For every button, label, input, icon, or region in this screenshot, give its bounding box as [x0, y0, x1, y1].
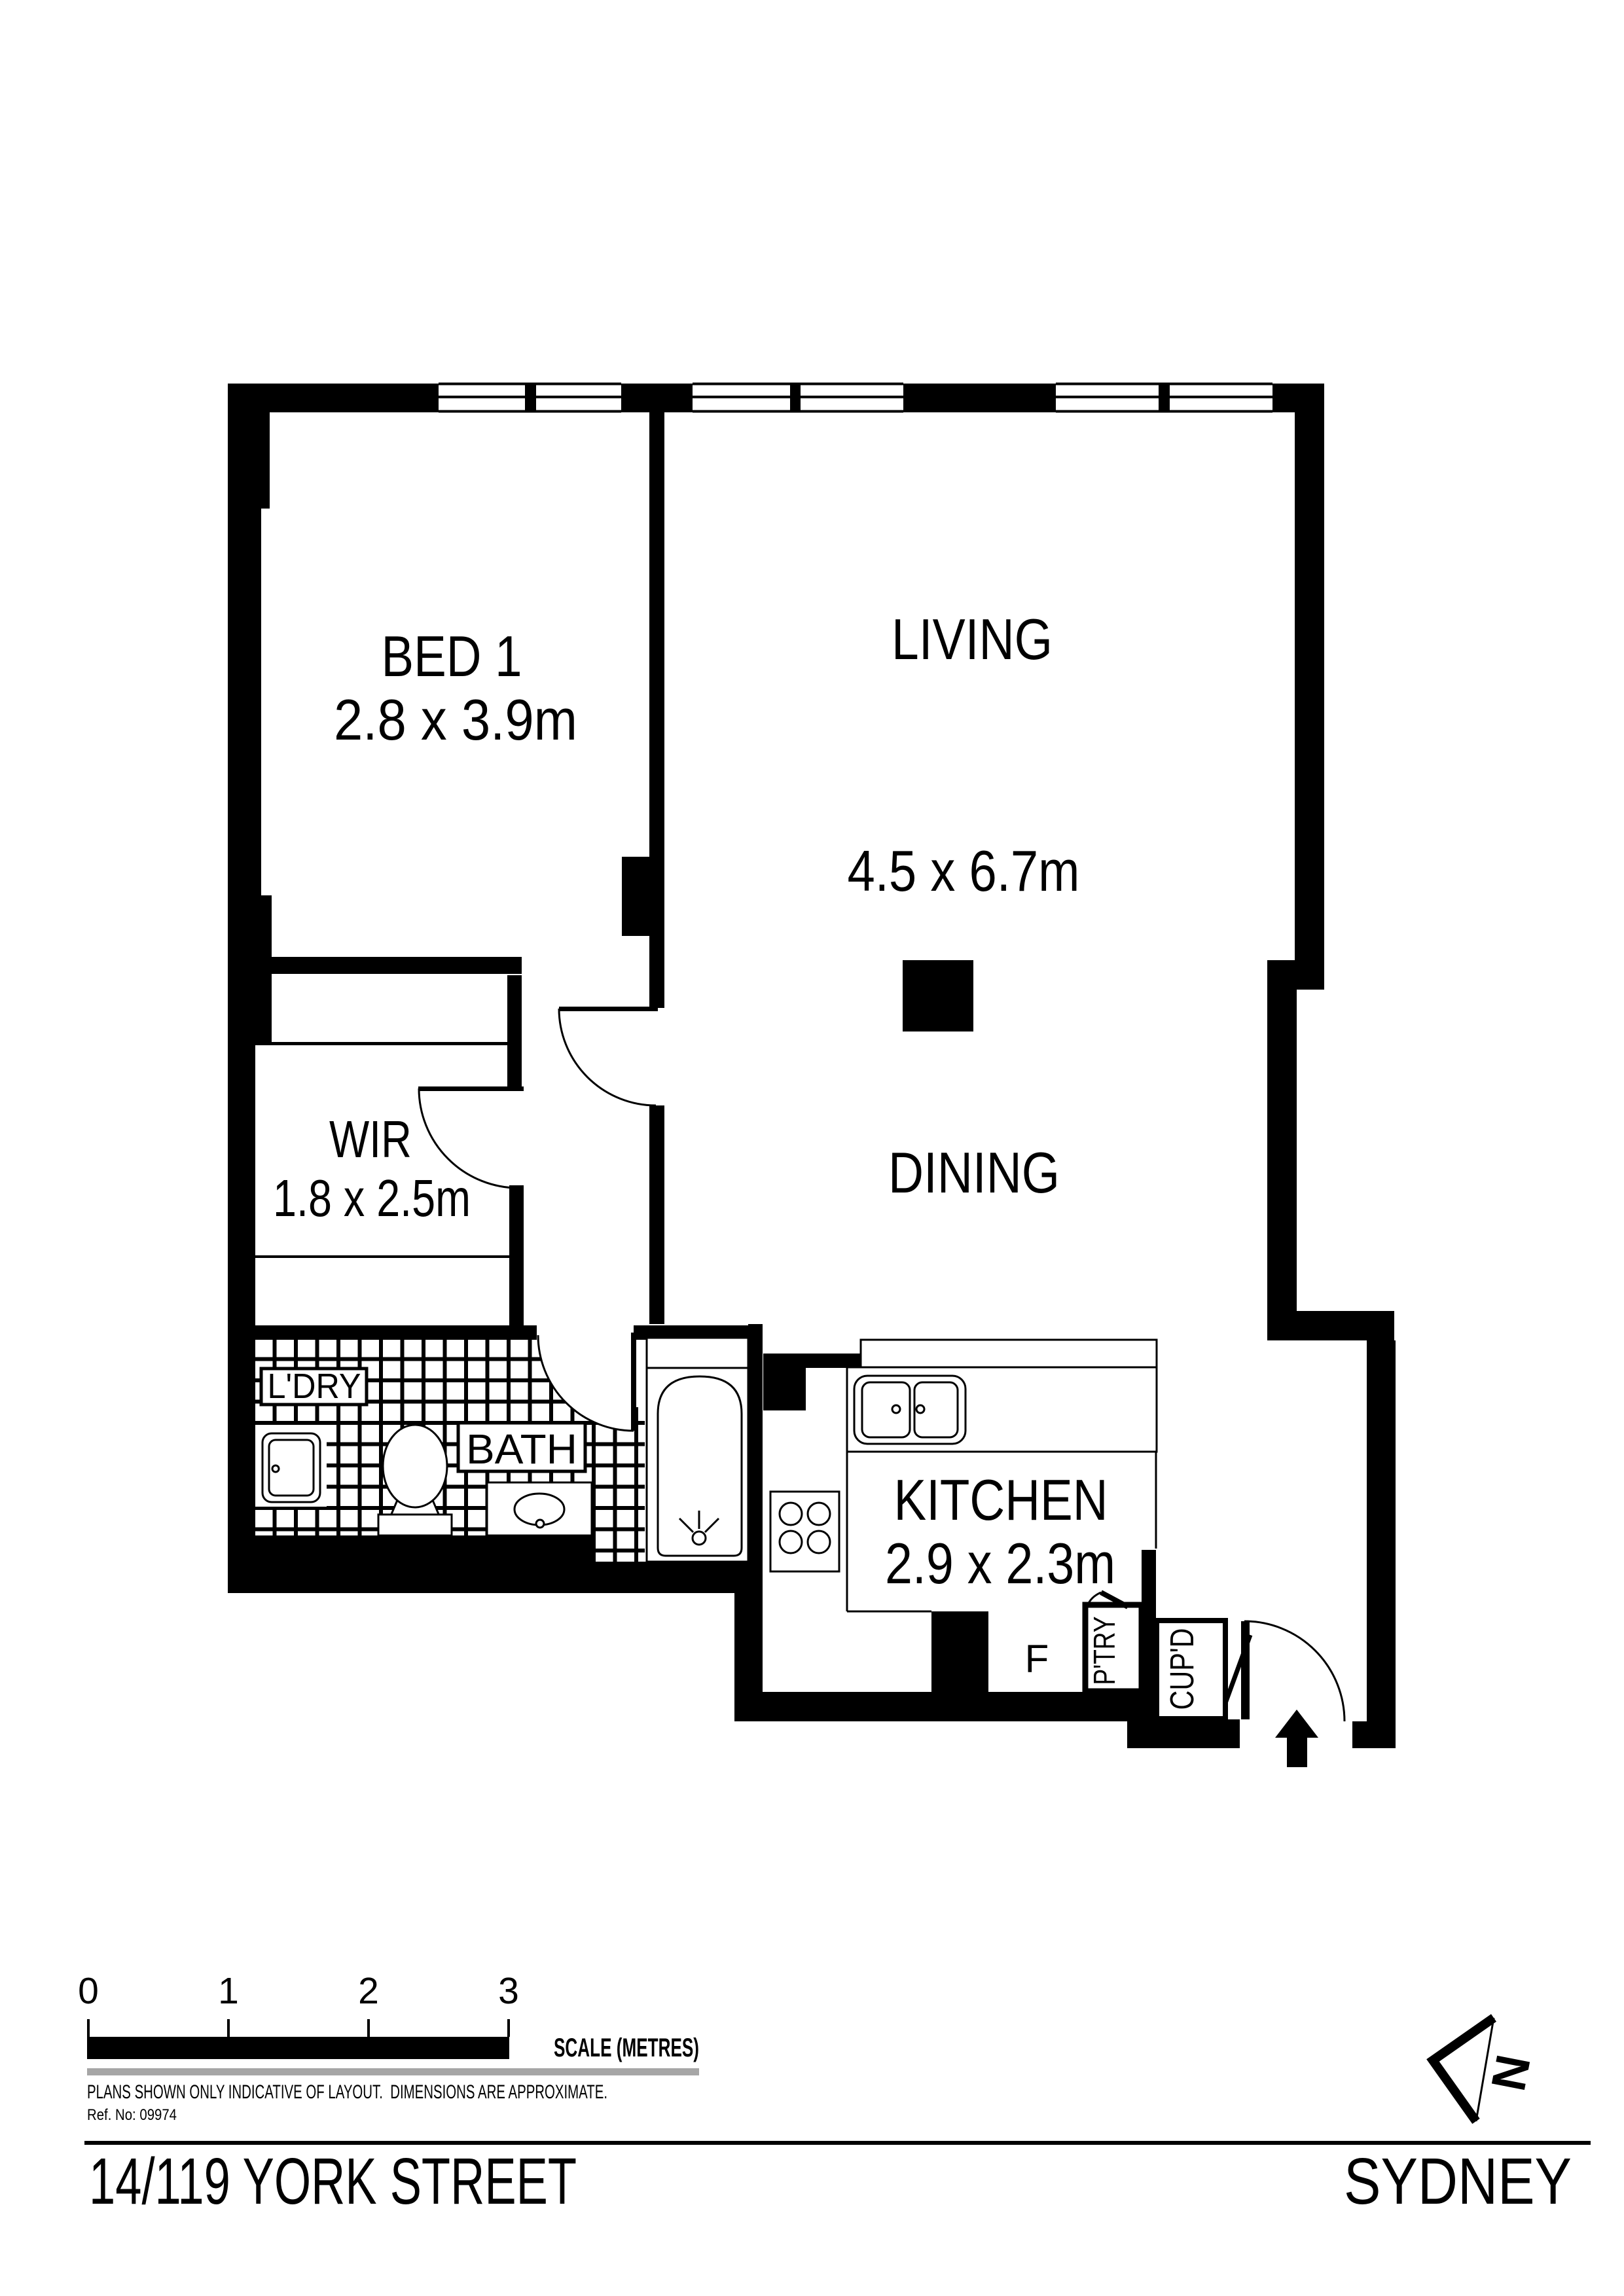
svg-text:SCALE (METRES): SCALE (METRES)	[554, 2034, 699, 2062]
svg-text:LIVING: LIVING	[892, 607, 1053, 672]
svg-text:BED 1: BED 1	[382, 624, 522, 689]
svg-text:L'DRY: L'DRY	[268, 1367, 361, 1406]
svg-text:DINING: DINING	[888, 1140, 1060, 1205]
svg-text:2.8 x 3.9m: 2.8 x 3.9m	[334, 687, 577, 752]
svg-text:CUP'D: CUP'D	[1163, 1628, 1200, 1710]
svg-text:1: 1	[218, 1970, 239, 2012]
svg-text:WIR: WIR	[329, 1110, 412, 1168]
svg-text:14/119 YORK STREET: 14/119 YORK STREET	[89, 2145, 577, 2218]
svg-text:Ref. No: 09974: Ref. No: 09974	[87, 2106, 177, 2124]
svg-text:4.5 x 6.7m: 4.5 x 6.7m	[848, 838, 1080, 903]
svg-text:P'TRY: P'TRY	[1087, 1617, 1121, 1685]
svg-text:KITCHEN: KITCHEN	[894, 1467, 1108, 1532]
svg-text:1.8 x 2.5m: 1.8 x 2.5m	[273, 1169, 471, 1227]
svg-text:2: 2	[358, 1970, 379, 2012]
svg-text:F: F	[1025, 1637, 1049, 1681]
svg-text:2.9 x 2.3m: 2.9 x 2.3m	[885, 1531, 1115, 1596]
svg-text:BATH: BATH	[466, 1426, 577, 1473]
svg-text:SYDNEY: SYDNEY	[1344, 2145, 1572, 2218]
svg-text:0: 0	[78, 1970, 99, 2012]
svg-text:PLANS SHOWN ONLY INDICATIVE OF: PLANS SHOWN ONLY INDICATIVE OF LAYOUT. D…	[87, 2081, 607, 2103]
svg-text:3: 3	[498, 1970, 519, 2012]
